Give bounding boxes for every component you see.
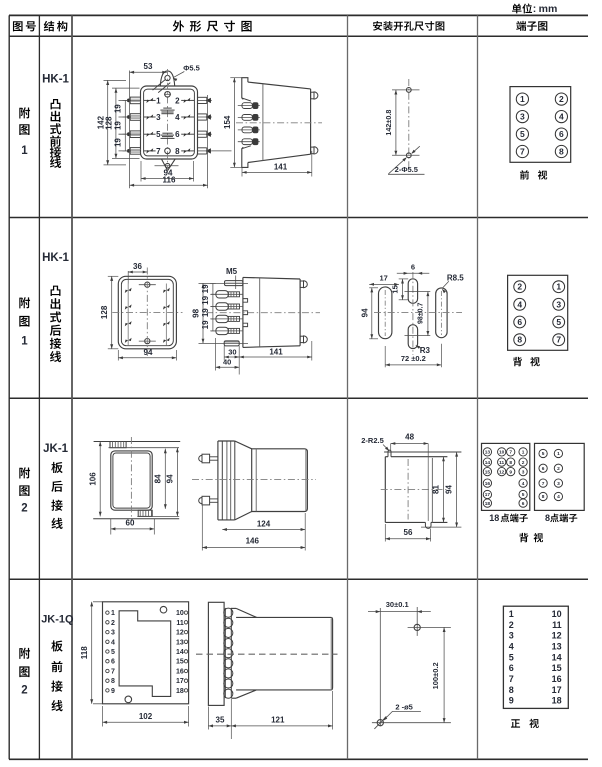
svg-text:1: 1 bbox=[21, 336, 28, 348]
svg-text:HK-1: HK-1 bbox=[42, 252, 69, 264]
svg-text:4: 4 bbox=[559, 112, 564, 122]
svg-text:2-Φ5.5: 2-Φ5.5 bbox=[395, 165, 418, 174]
svg-text:19: 19 bbox=[201, 295, 210, 304]
svg-text:1: 1 bbox=[509, 609, 514, 619]
svg-text:mm: mm bbox=[539, 3, 558, 15]
svg-text:3: 3 bbox=[509, 631, 514, 641]
svg-text:4: 4 bbox=[509, 642, 514, 652]
svg-text:14: 14 bbox=[176, 649, 184, 656]
svg-text:13: 13 bbox=[552, 642, 562, 652]
svg-text:2: 2 bbox=[509, 620, 514, 630]
svg-text::: : bbox=[533, 3, 537, 15]
svg-text:18: 18 bbox=[485, 501, 491, 507]
svg-text:11: 11 bbox=[176, 620, 184, 627]
svg-text:8: 8 bbox=[545, 513, 550, 523]
svg-text:124: 124 bbox=[257, 519, 271, 528]
svg-text:2: 2 bbox=[21, 503, 27, 515]
svg-text:17: 17 bbox=[176, 678, 184, 685]
svg-text:11: 11 bbox=[552, 620, 562, 630]
svg-text:6: 6 bbox=[111, 659, 115, 666]
svg-text:4: 4 bbox=[522, 481, 525, 487]
svg-text:7: 7 bbox=[111, 668, 115, 675]
svg-text:15: 15 bbox=[176, 659, 184, 666]
svg-text:13: 13 bbox=[485, 450, 491, 456]
svg-text:7: 7 bbox=[556, 335, 561, 345]
svg-text:1: 1 bbox=[111, 610, 115, 617]
svg-text:7: 7 bbox=[509, 674, 514, 684]
svg-text:12: 12 bbox=[176, 630, 184, 637]
svg-text:6: 6 bbox=[517, 317, 522, 327]
svg-text:56: 56 bbox=[404, 528, 413, 537]
svg-text:6: 6 bbox=[542, 466, 545, 472]
svg-text:9: 9 bbox=[509, 696, 514, 706]
svg-text:98: 98 bbox=[191, 308, 200, 317]
svg-text:5: 5 bbox=[156, 130, 161, 139]
svg-text:8: 8 bbox=[517, 335, 522, 345]
svg-text:18: 18 bbox=[552, 696, 562, 706]
svg-text:118: 118 bbox=[80, 646, 89, 659]
svg-text:2: 2 bbox=[21, 684, 27, 696]
svg-text:6: 6 bbox=[559, 129, 564, 139]
svg-text:13: 13 bbox=[176, 639, 184, 646]
svg-text:2: 2 bbox=[111, 620, 115, 627]
svg-text:1: 1 bbox=[522, 450, 525, 456]
svg-text:3: 3 bbox=[557, 481, 560, 487]
svg-text:HK-1: HK-1 bbox=[42, 73, 69, 85]
svg-text:8: 8 bbox=[509, 685, 514, 695]
svg-text:40: 40 bbox=[223, 358, 231, 367]
svg-text:7: 7 bbox=[542, 481, 545, 487]
svg-text:18: 18 bbox=[489, 513, 499, 523]
svg-text:7: 7 bbox=[156, 147, 161, 156]
svg-text:1: 1 bbox=[21, 145, 28, 157]
svg-text:2: 2 bbox=[517, 282, 522, 292]
svg-text:146: 146 bbox=[246, 537, 260, 546]
svg-text:15: 15 bbox=[552, 663, 562, 673]
svg-text:R8.5: R8.5 bbox=[447, 274, 464, 283]
svg-text:JK-1Q: JK-1Q bbox=[41, 614, 74, 626]
svg-text:1: 1 bbox=[556, 282, 561, 292]
svg-text:18: 18 bbox=[176, 688, 184, 695]
svg-text:98±0.7: 98±0.7 bbox=[418, 303, 425, 324]
svg-text:6: 6 bbox=[509, 663, 514, 673]
svg-text:5: 5 bbox=[111, 649, 115, 656]
svg-text:8: 8 bbox=[175, 147, 180, 156]
svg-text:17: 17 bbox=[485, 492, 491, 498]
svg-text:14: 14 bbox=[485, 460, 491, 466]
svg-text:15: 15 bbox=[391, 285, 400, 293]
svg-text:1: 1 bbox=[557, 451, 560, 457]
svg-text:3: 3 bbox=[520, 112, 525, 122]
svg-text:2: 2 bbox=[522, 460, 525, 466]
svg-text:Φ5.5: Φ5.5 bbox=[183, 64, 200, 73]
svg-text:116: 116 bbox=[163, 176, 176, 185]
svg-text:30±0.1: 30±0.1 bbox=[386, 600, 409, 609]
svg-text:1: 1 bbox=[156, 96, 161, 105]
svg-text:102: 102 bbox=[139, 712, 153, 721]
svg-text:94: 94 bbox=[144, 348, 153, 357]
svg-text:4: 4 bbox=[111, 639, 115, 646]
svg-text:154: 154 bbox=[223, 115, 232, 129]
svg-text:94: 94 bbox=[445, 485, 454, 494]
svg-text:19: 19 bbox=[201, 284, 210, 293]
svg-text:5: 5 bbox=[509, 652, 514, 662]
svg-text:2-R2.5: 2-R2.5 bbox=[361, 436, 384, 445]
svg-text:106: 106 bbox=[88, 472, 97, 486]
svg-text:17: 17 bbox=[380, 274, 388, 283]
svg-text:60: 60 bbox=[126, 519, 135, 528]
svg-text:121: 121 bbox=[271, 715, 285, 724]
svg-text:2: 2 bbox=[175, 96, 180, 105]
svg-text:53: 53 bbox=[144, 62, 153, 71]
svg-text:5: 5 bbox=[542, 451, 545, 457]
svg-text:8: 8 bbox=[509, 460, 512, 466]
svg-text:6: 6 bbox=[522, 501, 525, 507]
svg-text:141: 141 bbox=[269, 347, 283, 356]
svg-text:2: 2 bbox=[557, 466, 560, 472]
svg-text:8: 8 bbox=[111, 678, 115, 685]
svg-text:30: 30 bbox=[228, 347, 236, 356]
svg-text:36: 36 bbox=[133, 262, 142, 271]
svg-text:JK-1: JK-1 bbox=[43, 443, 69, 455]
svg-text:19: 19 bbox=[114, 121, 123, 130]
svg-text:17: 17 bbox=[552, 685, 562, 695]
svg-text:10: 10 bbox=[176, 610, 184, 617]
svg-text:3: 3 bbox=[556, 299, 561, 309]
svg-text:19: 19 bbox=[114, 138, 123, 147]
svg-text:14: 14 bbox=[552, 652, 562, 662]
svg-text:4: 4 bbox=[517, 299, 522, 309]
svg-text:84: 84 bbox=[154, 474, 163, 483]
svg-text:5: 5 bbox=[522, 492, 525, 498]
svg-text:1: 1 bbox=[520, 94, 525, 104]
svg-text:128: 128 bbox=[100, 305, 109, 319]
svg-text:19: 19 bbox=[114, 104, 123, 113]
svg-text:12: 12 bbox=[552, 631, 562, 641]
svg-text:9: 9 bbox=[509, 469, 512, 475]
svg-text:81: 81 bbox=[432, 485, 441, 494]
svg-text:7: 7 bbox=[520, 147, 525, 157]
svg-text:16: 16 bbox=[176, 668, 184, 675]
svg-text:2: 2 bbox=[559, 94, 564, 104]
svg-text:16: 16 bbox=[552, 674, 562, 684]
svg-text:19: 19 bbox=[201, 308, 210, 317]
svg-text:5: 5 bbox=[556, 317, 561, 327]
svg-text:11: 11 bbox=[499, 460, 504, 466]
svg-text:141: 141 bbox=[274, 163, 288, 172]
svg-text:3: 3 bbox=[111, 630, 115, 637]
svg-text:19: 19 bbox=[201, 320, 210, 329]
svg-text:15: 15 bbox=[485, 469, 491, 475]
svg-text:10: 10 bbox=[552, 609, 562, 619]
svg-text:4: 4 bbox=[557, 494, 560, 500]
svg-text:6: 6 bbox=[411, 263, 415, 272]
svg-text:3: 3 bbox=[522, 469, 525, 475]
svg-text:128: 128 bbox=[105, 116, 114, 130]
svg-text:8: 8 bbox=[542, 494, 545, 500]
svg-text:16: 16 bbox=[485, 481, 491, 487]
svg-text:7: 7 bbox=[509, 450, 512, 456]
svg-text:142±0.8: 142±0.8 bbox=[384, 110, 393, 136]
svg-text:9: 9 bbox=[111, 688, 115, 695]
svg-text:12: 12 bbox=[499, 469, 505, 475]
svg-text:100±0.2: 100±0.2 bbox=[431, 662, 440, 689]
svg-text:4: 4 bbox=[175, 113, 180, 122]
svg-text:2 -ø5: 2 -ø5 bbox=[395, 702, 413, 711]
svg-text:6: 6 bbox=[175, 130, 180, 139]
svg-text:M5: M5 bbox=[226, 267, 238, 276]
svg-text:8: 8 bbox=[559, 147, 564, 157]
svg-text:10: 10 bbox=[499, 450, 505, 456]
svg-text:5: 5 bbox=[520, 129, 525, 139]
svg-text:3: 3 bbox=[156, 113, 161, 122]
svg-text:94: 94 bbox=[360, 308, 369, 317]
svg-text:94: 94 bbox=[166, 474, 175, 483]
svg-text:48: 48 bbox=[405, 433, 414, 442]
svg-text:72 ±0.2: 72 ±0.2 bbox=[401, 354, 426, 363]
svg-text:35: 35 bbox=[216, 715, 225, 724]
